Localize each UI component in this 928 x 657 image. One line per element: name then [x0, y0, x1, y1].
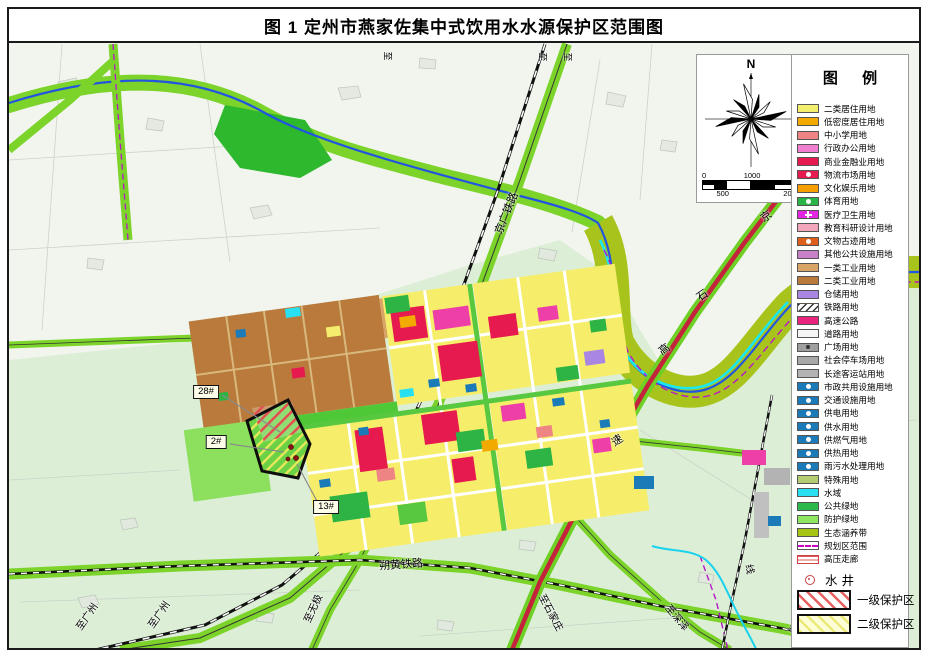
legend-item-label: 其他公共设施用地	[824, 248, 893, 260]
legend-item-label: 一类工业用地	[824, 262, 876, 274]
legend-swatch	[797, 555, 819, 564]
legend-item-label: 特殊用地	[824, 474, 858, 486]
well-label: 水井	[825, 570, 858, 589]
legend-item: 广场用地	[797, 341, 903, 354]
legend-panel: 图 例 二类居住用地低密度居住用地中小学用地行政办公用地商业金融业用地物流市场用…	[791, 54, 909, 648]
map-label: 至	[382, 51, 395, 60]
legend-swatch	[797, 396, 819, 405]
legend-item-label: 广场用地	[824, 341, 858, 353]
legend-swatch	[797, 502, 819, 511]
legend-item: 二类工业用地	[797, 274, 903, 287]
legend-item: 体育用地	[797, 195, 903, 208]
legend-item: 教育科研设计用地	[797, 221, 903, 234]
legend-item-label: 物流市场用地	[824, 169, 876, 181]
legend-swatch	[797, 343, 819, 352]
legend-swatch	[797, 462, 819, 471]
legend-swatch	[797, 369, 819, 378]
legend-item-label: 体育用地	[824, 195, 858, 207]
legend-swatch	[797, 210, 819, 219]
legend-swatch	[797, 184, 819, 193]
legend-item: 一类工业用地	[797, 261, 903, 274]
legend-item: 商业金融业用地	[797, 155, 903, 168]
legend-swatch	[797, 197, 819, 206]
legend-swatch	[797, 528, 819, 537]
legend-swatch	[797, 303, 819, 312]
legend-swatch	[797, 329, 819, 338]
legend-item-label: 高压走廊	[824, 553, 858, 565]
legend-zone-level2: 二级保护区	[797, 613, 903, 636]
figure-title: 图 1 定州市燕家佐集中式饮用水水源保护区范围图	[264, 13, 664, 38]
scale-label: 500	[716, 190, 729, 198]
legend-item: 低密度居住用地	[797, 115, 903, 128]
legend-item: 规划区范围	[797, 539, 903, 552]
legend-swatch	[797, 488, 819, 497]
legend-item: 防护绿地	[797, 513, 903, 526]
legend-swatch	[797, 117, 819, 126]
legend-item: 文化娱乐用地	[797, 182, 903, 195]
legend-swatch	[797, 356, 819, 365]
map-area: 京广铁路朔黄铁路至广州至广州至无极至石家庄至深泽至黄线京石高速至至至28#2#1…	[9, 43, 919, 648]
legend-item: 行政办公用地	[797, 142, 903, 155]
legend-item-label: 供电用地	[824, 407, 858, 419]
legend-swatch	[797, 250, 819, 259]
figure-page: 图 1 定州市燕家佐集中式饮用水水源保护区范围图	[0, 0, 928, 657]
legend-swatch	[797, 382, 819, 391]
well-callout: 28#	[193, 385, 219, 399]
legend-item: 道路用地	[797, 327, 903, 340]
legend-item: 二类居住用地	[797, 102, 903, 115]
legend-swatch	[797, 144, 819, 153]
legend-item: 高压走廊	[797, 553, 903, 566]
legend-swatch	[797, 541, 819, 550]
legend-zone-level1: 一级保护区	[797, 589, 903, 612]
primary-zone-label: 一级保护区	[857, 592, 915, 608]
legend-item: 雨污水处理用地	[797, 460, 903, 473]
legend-swatch	[797, 515, 819, 524]
legend-item: 供水用地	[797, 420, 903, 433]
legend-item-label: 低密度居住用地	[824, 116, 884, 128]
legend-item: 医疗卫生用地	[797, 208, 903, 221]
legend-item: 供热用地	[797, 447, 903, 460]
legend-title: 图 例	[797, 67, 903, 88]
scale-bar: 0 1000 500 2000	[702, 172, 800, 198]
primary-zone-swatch	[797, 590, 851, 610]
secondary-zone-swatch	[797, 614, 851, 634]
legend-item-label: 文化娱乐用地	[824, 182, 876, 194]
legend-swatch	[797, 475, 819, 484]
legend-swatch	[797, 290, 819, 299]
legend-swatch	[797, 223, 819, 232]
legend-item-label: 市政共用设施用地	[824, 381, 893, 393]
map-label: 至	[537, 52, 550, 61]
legend-item-label: 铁路用地	[824, 301, 858, 313]
legend-swatch	[797, 263, 819, 272]
compass-rose-icon	[701, 67, 801, 171]
legend-item-label: 供燃气用地	[824, 434, 867, 446]
legend-item: 其他公共设施用地	[797, 248, 903, 261]
legend-item: 中小学用地	[797, 129, 903, 142]
figure-frame: 图 1 定州市燕家佐集中式饮用水水源保护区范围图	[7, 7, 921, 650]
legend-item-label: 交通设施用地	[824, 394, 876, 406]
legend-swatch	[797, 157, 819, 166]
legend-item: 高速公路	[797, 314, 903, 327]
legend-swatch	[797, 237, 819, 246]
legend-items: 二类居住用地低密度居住用地中小学用地行政办公用地商业金融业用地物流市场用地文化娱…	[797, 102, 903, 566]
legend-item: 社会停车场用地	[797, 354, 903, 367]
legend-swatch	[797, 422, 819, 431]
legend-swatch	[797, 131, 819, 140]
well-callout: 13#	[313, 500, 339, 514]
legend-item-label: 规划区范围	[824, 540, 867, 552]
legend-well: 水井	[797, 572, 903, 588]
legend-item: 生态涵养带	[797, 526, 903, 539]
legend-item-label: 文物古迹用地	[824, 235, 876, 247]
legend-item-label: 防护绿地	[824, 513, 858, 525]
legend-item-label: 中小学用地	[824, 129, 867, 141]
compass-panel: N 0 1000 500 2000	[696, 54, 805, 203]
legend-item-label: 医疗卫生用地	[824, 209, 876, 221]
legend-swatch	[797, 276, 819, 285]
legend-item-label: 供热用地	[824, 447, 858, 459]
legend-item-label: 生态涵养带	[824, 527, 867, 539]
legend-item: 供电用地	[797, 407, 903, 420]
legend-item: 文物古迹用地	[797, 235, 903, 248]
well-callout: 2#	[206, 435, 227, 449]
legend-item-label: 供水用地	[824, 421, 858, 433]
legend-item-label: 雨污水处理用地	[824, 460, 884, 472]
legend-swatch	[797, 435, 819, 444]
legend-swatch	[797, 409, 819, 418]
legend-item-label: 公共绿地	[824, 500, 858, 512]
legend-item-label: 长途客运站用地	[824, 368, 884, 380]
legend-bottom: 水井 一级保护区 二级保护区	[797, 572, 903, 636]
legend-item-label: 仓储用地	[824, 288, 858, 300]
legend-item: 供燃气用地	[797, 433, 903, 446]
secondary-zone-label: 二级保护区	[857, 616, 915, 632]
legend-item-label: 行政办公用地	[824, 142, 876, 154]
legend-item: 公共绿地	[797, 500, 903, 513]
legend-item-label: 高速公路	[824, 315, 858, 327]
legend-item: 物流市场用地	[797, 168, 903, 181]
well-icon	[805, 575, 815, 585]
legend-item-label: 二类居住用地	[824, 103, 876, 115]
legend-swatch	[797, 104, 819, 113]
legend-item: 交通设施用地	[797, 394, 903, 407]
legend-item-label: 商业金融业用地	[824, 156, 884, 168]
legend-item-label: 教育科研设计用地	[824, 222, 893, 234]
legend-item: 水域	[797, 486, 903, 499]
scale-label: 0	[702, 172, 706, 180]
map-label: 朔黄铁路	[378, 554, 423, 573]
legend-item: 特殊用地	[797, 473, 903, 486]
legend-item-label: 社会停车场用地	[824, 354, 884, 366]
scale-label: 1000	[744, 172, 761, 180]
legend-item-label: 水域	[824, 487, 841, 499]
legend-swatch	[797, 316, 819, 325]
legend-item: 市政共用设施用地	[797, 380, 903, 393]
legend-item-label: 二类工业用地	[824, 275, 876, 287]
legend-item-label: 道路用地	[824, 328, 858, 340]
legend-item: 仓储用地	[797, 288, 903, 301]
legend-item: 长途客运站用地	[797, 367, 903, 380]
legend-swatch	[797, 170, 819, 179]
legend-swatch	[797, 449, 819, 458]
figure-title-bar: 图 1 定州市燕家佐集中式饮用水水源保护区范围图	[9, 9, 919, 43]
legend-item: 铁路用地	[797, 301, 903, 314]
map-label: 至	[562, 52, 575, 61]
